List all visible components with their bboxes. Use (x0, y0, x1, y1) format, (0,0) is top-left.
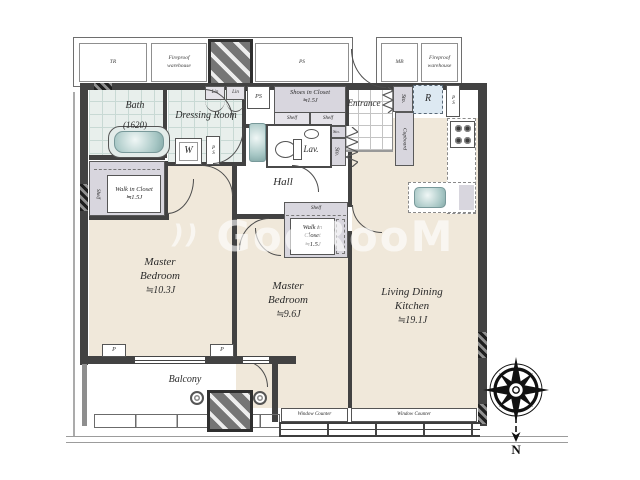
fireproof-warehouse-right-label: Fireproof warehouse (423, 55, 457, 69)
pipe-space-label: PS (255, 94, 262, 102)
trunk-room: TR (79, 43, 147, 82)
hatch-block-balcony (207, 390, 253, 432)
compass-north-label: N (511, 442, 521, 457)
ldk-label: Living Dining Kitchen ≒19.1J (366, 286, 458, 327)
refrigerator-label: R (425, 93, 431, 106)
balcony-label: Balcony (150, 374, 220, 387)
washer: W (175, 138, 202, 165)
wall (80, 83, 88, 365)
storage-label: Sto. (334, 147, 340, 156)
pillar-label: P (220, 347, 224, 355)
pipe-space-right: PS (446, 85, 460, 117)
storage-entrance: Sto. (393, 86, 413, 112)
shelf-label: Shelf (287, 116, 297, 122)
watermark-mark: )) (172, 220, 200, 250)
shoes-closet-label: Shoes in Closet ≒1.5J (276, 89, 344, 106)
bathtub-basin (114, 131, 164, 153)
hall-label: Hall (258, 176, 308, 190)
bath-size: (1620) (123, 120, 147, 130)
wic-left-shelf: Shelf (91, 176, 103, 212)
wic-left-size: ≒1.5J (126, 194, 142, 201)
column-hatch (80, 184, 88, 211)
pillar: P (102, 344, 126, 357)
lavatory-label: Lav. (296, 144, 326, 155)
floor-plan: TR Fireproof warehouse PS MB Fireproof w… (0, 0, 640, 480)
master-bedroom-2-name: Master Bedroom (253, 280, 323, 308)
window-counter-left: Window Counter (281, 408, 348, 422)
counter-end-panel (459, 185, 474, 210)
master-bedroom-2-size: ≒9.6J (275, 309, 300, 320)
cupboard-label: Cupboard (402, 128, 408, 150)
wic-left-name: Walk in Closet (115, 186, 153, 193)
wall (82, 364, 87, 426)
pipe-space-label: PS (450, 96, 456, 106)
storage-label: Sto. (400, 94, 406, 103)
storage-label: Sto. (333, 129, 340, 135)
master-bedroom-1-size: ≒10.3J (145, 285, 175, 296)
shoes-closet-name: Shoes in Closet (290, 89, 330, 96)
compass-rose: N (480, 354, 552, 460)
meter-box: MB (381, 43, 418, 82)
master-bedroom-2-label: Master Bedroom ≒9.6J (242, 280, 334, 321)
fireproof-warehouse-left-label: Fireproof warehouse (158, 55, 200, 69)
pillar-label: P (112, 347, 116, 355)
window-counter-label: Window Counter (298, 412, 332, 418)
column-hatch (94, 83, 112, 90)
watermark-text: GooRooM (216, 212, 454, 261)
drain-icon (190, 391, 204, 405)
folding-door-icon (345, 127, 358, 167)
fireproof-warehouse-right: Fireproof warehouse (421, 43, 458, 82)
window-band (279, 422, 480, 437)
shelf-label: Shelf (94, 189, 100, 199)
hanger-pipe (94, 169, 160, 170)
washer-label: W (184, 145, 192, 158)
entrance-label: Entrance (336, 98, 392, 109)
vanity-icon (249, 123, 266, 162)
shelf-label: Shelf (323, 116, 333, 122)
ldk-name: Living Dining Kitchen (368, 286, 456, 314)
fireproof-warehouse-left: Fireproof warehouse (151, 43, 207, 82)
corridor-ps-label: PS (299, 59, 305, 66)
pillar: P (210, 344, 234, 357)
linen-cabinet: Lin (226, 86, 245, 100)
trunk-room-label: TR (110, 59, 116, 66)
wall (272, 356, 278, 422)
exterior-line-left (73, 92, 75, 438)
window (134, 356, 206, 364)
stove-icon (450, 121, 475, 148)
ldk-size: ≒19.1J (397, 315, 427, 326)
cupboard: Cupboard (395, 112, 414, 166)
lav-sink-icon (304, 129, 319, 139)
window-counter-label: Window Counter (397, 412, 431, 418)
shoes-closet-size: ≒1.5J (302, 98, 317, 104)
refrigerator: R (413, 85, 443, 114)
bath-name: Bath (126, 100, 145, 111)
wic-left-labelbox: Walk in Closet ≒1.5J (107, 175, 161, 213)
bath-label: Bath (1620) (104, 94, 166, 134)
window (242, 356, 270, 364)
kitchen-sink-icon (414, 187, 446, 208)
drain-icon (253, 391, 267, 405)
window-counter-right: Window Counter (351, 408, 477, 422)
linen-label: Lin (232, 90, 239, 96)
watermark: )) GooRooM (172, 212, 454, 261)
meter-box-label: MB (396, 59, 404, 66)
corridor-ps: PS (255, 43, 349, 82)
master-bedroom-1-label: Master Bedroom ≒10.3J (112, 256, 208, 297)
pipe-space-box: PS (247, 86, 270, 109)
